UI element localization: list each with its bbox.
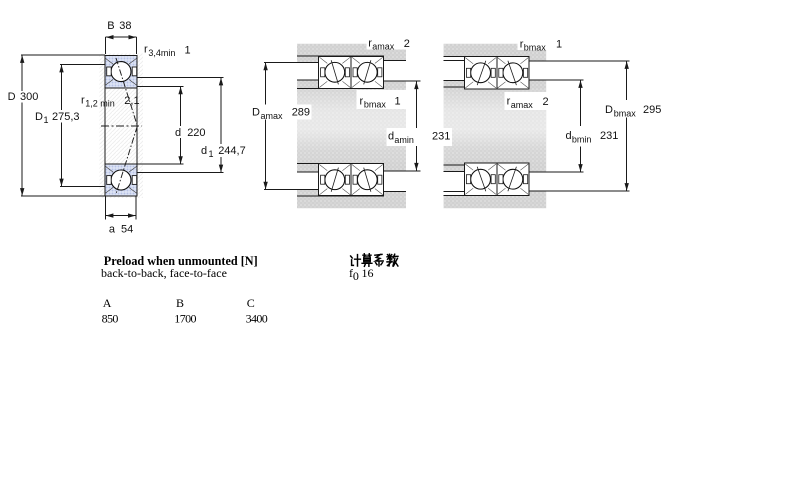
svg-text:3,4min: 3,4min <box>148 48 175 58</box>
svg-text:38: 38 <box>119 20 131 32</box>
svg-text:amax: amax <box>511 100 534 110</box>
svg-text:1: 1 <box>395 96 401 108</box>
svg-text:B: B <box>176 296 184 310</box>
svg-text:amax: amax <box>261 111 284 121</box>
svg-text:amin: amin <box>394 135 414 145</box>
svg-text:295: 295 <box>643 104 661 116</box>
svg-text:0: 0 <box>353 269 359 283</box>
svg-text:B: B <box>107 20 114 32</box>
svg-text:231: 231 <box>600 130 618 142</box>
svg-text:2: 2 <box>543 96 549 108</box>
svg-text:3400: 3400 <box>246 311 268 325</box>
svg-text:r: r <box>360 95 364 107</box>
svg-text:bmax: bmax <box>614 108 637 118</box>
svg-text:1: 1 <box>556 38 562 50</box>
svg-text:d: d <box>388 131 394 143</box>
svg-text:bmax: bmax <box>524 43 547 53</box>
svg-text:A: A <box>103 296 112 310</box>
svg-text:16: 16 <box>362 266 374 280</box>
svg-text:a: a <box>109 224 116 236</box>
svg-text:1: 1 <box>44 115 49 125</box>
svg-text:2: 2 <box>404 38 410 50</box>
svg-text:2,1: 2,1 <box>124 95 139 107</box>
svg-text:244,7: 244,7 <box>218 145 246 157</box>
svg-text:300: 300 <box>20 91 38 103</box>
svg-text:850: 850 <box>102 311 119 325</box>
svg-text:231: 231 <box>432 131 450 143</box>
svg-text:D: D <box>35 111 43 123</box>
svg-text:54: 54 <box>121 224 133 236</box>
svg-text:d: d <box>566 130 572 142</box>
svg-text:220: 220 <box>187 127 205 139</box>
svg-text:1700: 1700 <box>174 311 196 325</box>
svg-text:r: r <box>144 44 148 56</box>
svg-text:back-to-back, face-to-face: back-to-back, face-to-face <box>101 266 227 280</box>
svg-text:1,2 min: 1,2 min <box>85 98 115 108</box>
svg-text:289: 289 <box>292 107 310 119</box>
svg-text:1: 1 <box>209 149 214 159</box>
svg-text:d: d <box>201 145 207 157</box>
svg-text:C: C <box>247 296 255 310</box>
svg-text:amax: amax <box>372 42 395 52</box>
svg-text:d: d <box>175 127 181 139</box>
svg-text:1: 1 <box>185 45 191 57</box>
svg-text:bmax: bmax <box>364 100 387 110</box>
svg-text:275,3: 275,3 <box>52 111 80 123</box>
svg-text:D: D <box>252 107 260 119</box>
svg-text:bmin: bmin <box>572 134 592 144</box>
svg-text:D: D <box>605 104 613 116</box>
svg-text:D: D <box>8 91 16 103</box>
